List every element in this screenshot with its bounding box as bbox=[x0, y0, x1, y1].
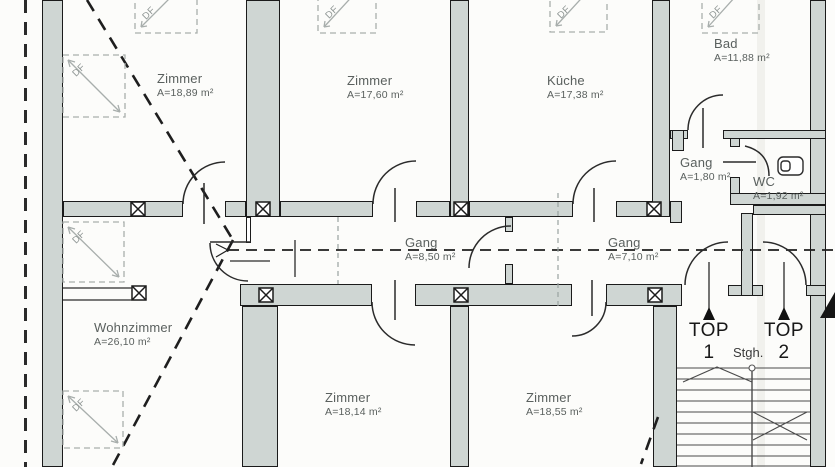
unit-label-top1: TOP 1 bbox=[682, 320, 736, 364]
column-marker bbox=[132, 286, 146, 300]
top2-arrow-icon bbox=[778, 307, 790, 320]
skylight-markers: DF DF DF DF DF DF DF bbox=[63, 0, 759, 448]
column-marker bbox=[256, 202, 270, 216]
room-label-zimmer-sw: Zimmer A=18,14 m² bbox=[325, 390, 382, 418]
unit-label-top2: TOP 2 bbox=[757, 320, 811, 364]
plan-linework: DF DF DF DF DF DF DF bbox=[0, 0, 835, 467]
stairwell-label: Stgh. bbox=[733, 345, 763, 360]
skylight-df: DF bbox=[318, 0, 376, 33]
room-label-zimmer-n: Zimmer A=17,60 m² bbox=[347, 73, 404, 101]
svg-text:DF: DF bbox=[707, 4, 724, 21]
svg-text:DF: DF bbox=[555, 4, 572, 21]
svg-text:DF: DF bbox=[323, 4, 340, 21]
room-label-gang-east: Gang A=7,10 m² bbox=[608, 235, 659, 263]
column-marker bbox=[259, 288, 273, 302]
door-kueche bbox=[573, 161, 616, 222]
staircase bbox=[677, 365, 810, 467]
skylight-df: DF bbox=[550, 0, 607, 32]
room-label-wc: WC A=1,92 m² bbox=[753, 174, 804, 202]
door-corridor-middle bbox=[469, 226, 511, 268]
column-marker bbox=[648, 288, 662, 302]
room-label-kueche: Küche A=17,38 m² bbox=[547, 73, 604, 101]
entry-markers bbox=[703, 262, 835, 320]
column-marker bbox=[454, 202, 468, 216]
room-label-bad: Bad A=11,88 m² bbox=[714, 36, 770, 64]
top1-arrow-icon bbox=[703, 307, 715, 320]
skylight-df: DF bbox=[135, 0, 197, 33]
room-label-gang-small: Gang A=1,80 m² bbox=[680, 155, 731, 183]
column-marker bbox=[131, 202, 145, 216]
skylight-df: DF bbox=[702, 0, 759, 33]
section-wedge-icon bbox=[820, 292, 835, 318]
door-zimmer-se bbox=[572, 280, 606, 336]
room-label-zimmer-se: Zimmer A=18,55 m² bbox=[526, 390, 583, 418]
room-label-wohnzimmer: Wohnzimmer A=26,10 m² bbox=[94, 320, 172, 348]
room-label-zimmer-nw: Zimmer A=18,89 m² bbox=[157, 71, 214, 99]
doors bbox=[183, 95, 806, 345]
skylight-df: DF bbox=[63, 222, 124, 282]
door-top1-entry bbox=[685, 242, 728, 285]
door-zimmer-sw bbox=[372, 280, 415, 345]
room-label-gang-west: Gang A=8,50 m² bbox=[405, 235, 456, 263]
door-zimmer2 bbox=[373, 161, 416, 222]
skylight-df: DF bbox=[63, 391, 123, 448]
column-marker bbox=[454, 288, 468, 302]
skylight-df: DF bbox=[63, 55, 125, 117]
column-marker bbox=[647, 202, 661, 216]
svg-text:DF: DF bbox=[140, 5, 157, 22]
door-bad bbox=[688, 95, 723, 148]
toilet-icon bbox=[778, 157, 803, 175]
corridor-centerline bbox=[216, 244, 835, 257]
floor-plan: DF DF DF DF DF DF DF bbox=[0, 0, 835, 467]
